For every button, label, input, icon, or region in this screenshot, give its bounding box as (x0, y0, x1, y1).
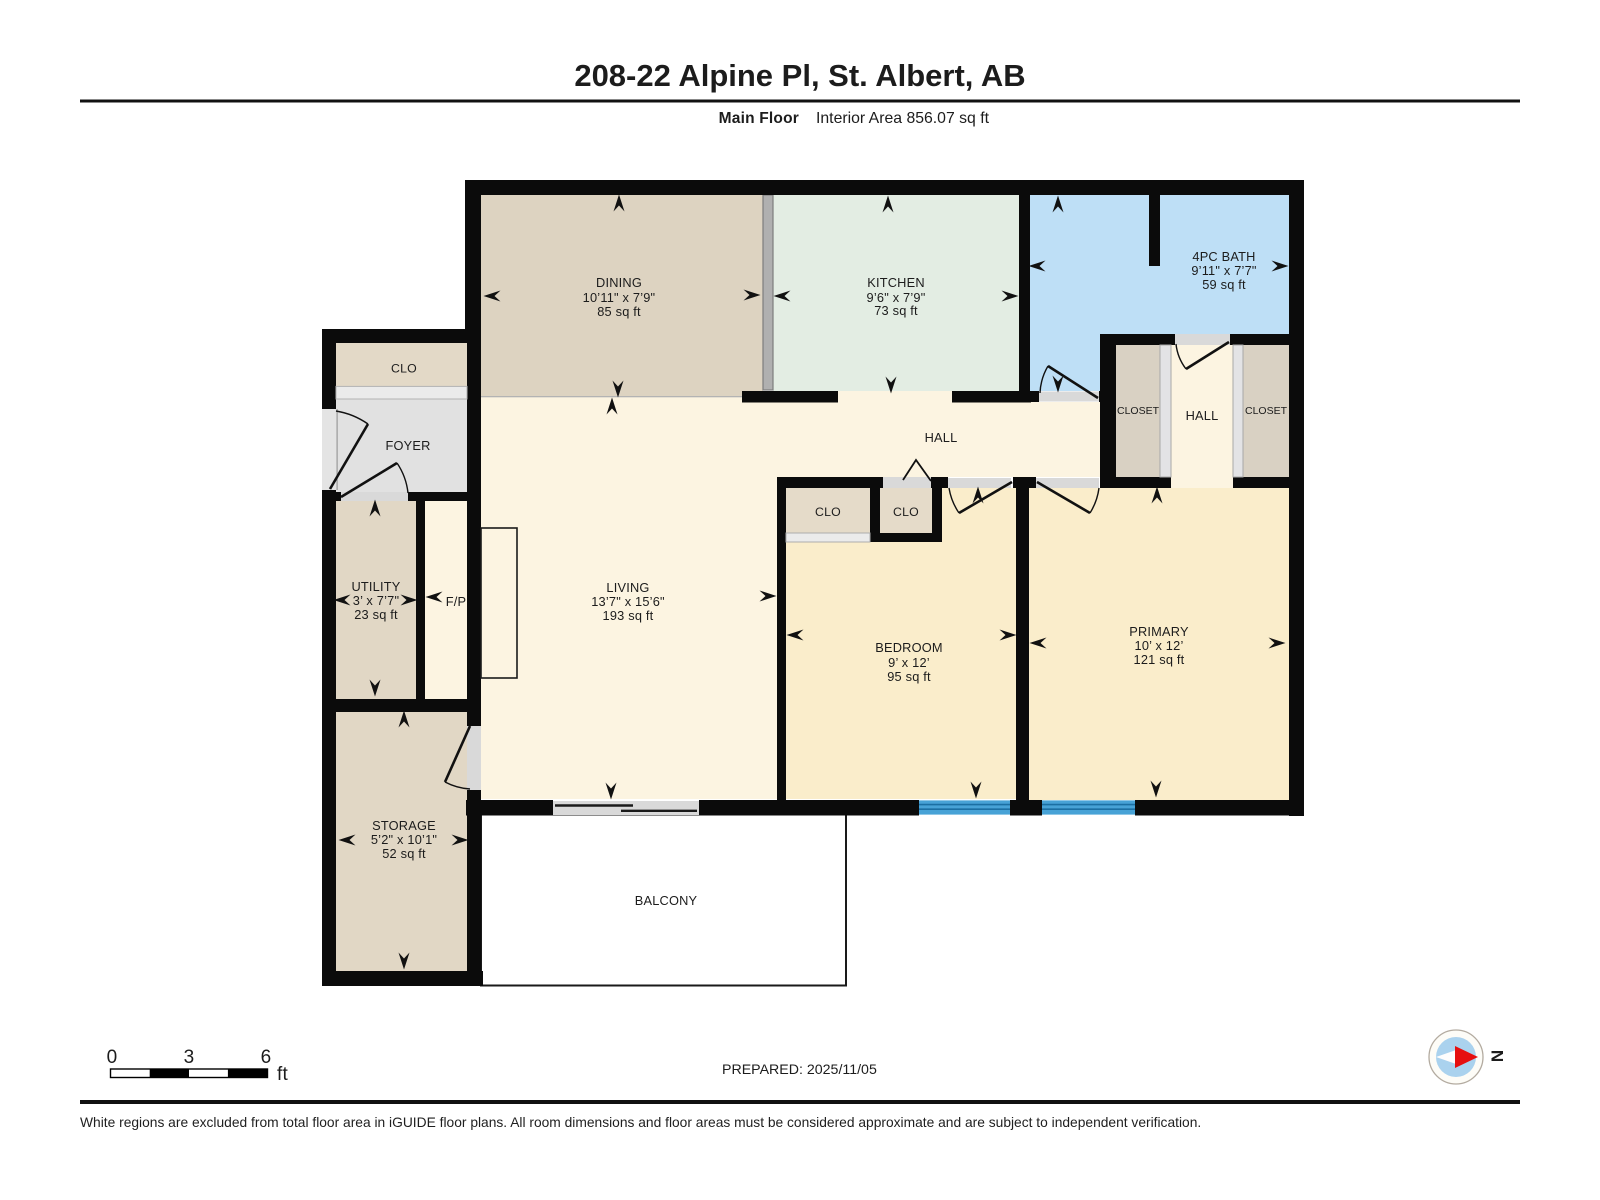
svg-text:DINING: DINING (596, 275, 642, 290)
svg-text:CLO: CLO (815, 505, 841, 519)
svg-text:F/P: F/P (446, 594, 467, 609)
svg-text:Interior Area 856.07 sq ft: Interior Area 856.07 sq ft (816, 110, 990, 127)
svg-text:10’11" x 7’9": 10’11" x 7’9" (583, 290, 656, 305)
svg-text:9’11" x 7’7": 9’11" x 7’7" (1191, 263, 1256, 278)
svg-text:BEDROOM: BEDROOM (875, 640, 943, 655)
svg-text:CLOSET: CLOSET (1245, 405, 1288, 417)
svg-text:STORAGE: STORAGE (372, 818, 436, 833)
svg-text:BALCONY: BALCONY (635, 893, 698, 908)
svg-text:85 sq ft: 85 sq ft (597, 304, 641, 319)
svg-text:208-22 Alpine Pl, St. Albert,: 208-22 Alpine Pl, St. Albert, AB (574, 58, 1025, 93)
svg-text:LIVING: LIVING (606, 580, 649, 595)
svg-text:10’ x 12’: 10’ x 12’ (1135, 638, 1184, 653)
svg-text:73 sq ft: 73 sq ft (874, 303, 918, 318)
svg-text:3’ x 7’7": 3’ x 7’7" (353, 593, 399, 608)
svg-text:59 sq ft: 59 sq ft (1202, 277, 1246, 292)
svg-text:3: 3 (184, 1047, 195, 1068)
svg-text:6: 6 (261, 1047, 272, 1068)
svg-text:KITCHEN: KITCHEN (867, 275, 925, 290)
svg-text:PREPARED: 2025/11/05: PREPARED: 2025/11/05 (722, 1062, 877, 1078)
svg-text:4PC BATH: 4PC BATH (1192, 249, 1255, 264)
svg-text:CLO: CLO (391, 362, 417, 376)
svg-text:9’ x 12’: 9’ x 12’ (888, 655, 930, 670)
svg-text:13’7" x 15’6": 13’7" x 15’6" (591, 594, 665, 609)
svg-text:0: 0 (107, 1047, 118, 1068)
svg-text:HALL: HALL (925, 430, 958, 445)
svg-text:ft: ft (277, 1064, 288, 1085)
svg-text:HALL: HALL (1186, 408, 1219, 423)
svg-text:23 sq ft: 23 sq ft (354, 607, 398, 622)
svg-text:UTILITY: UTILITY (351, 579, 400, 594)
svg-text:193 sq ft: 193 sq ft (603, 608, 654, 623)
svg-text:White regions are excluded fro: White regions are excluded from total fl… (80, 1115, 1201, 1130)
svg-text:95 sq ft: 95 sq ft (887, 669, 931, 684)
svg-text:PRIMARY: PRIMARY (1129, 624, 1189, 639)
svg-text:5’2" x 10’1": 5’2" x 10’1" (371, 832, 437, 847)
svg-text:Main Floor: Main Floor (719, 110, 799, 127)
svg-text:121 sq ft: 121 sq ft (1134, 652, 1185, 667)
svg-text:FOYER: FOYER (385, 438, 430, 453)
svg-text:N: N (1488, 1050, 1507, 1062)
svg-text:CLO: CLO (893, 505, 919, 519)
svg-text:CLOSET: CLOSET (1117, 405, 1160, 417)
svg-text:52 sq ft: 52 sq ft (382, 846, 426, 861)
